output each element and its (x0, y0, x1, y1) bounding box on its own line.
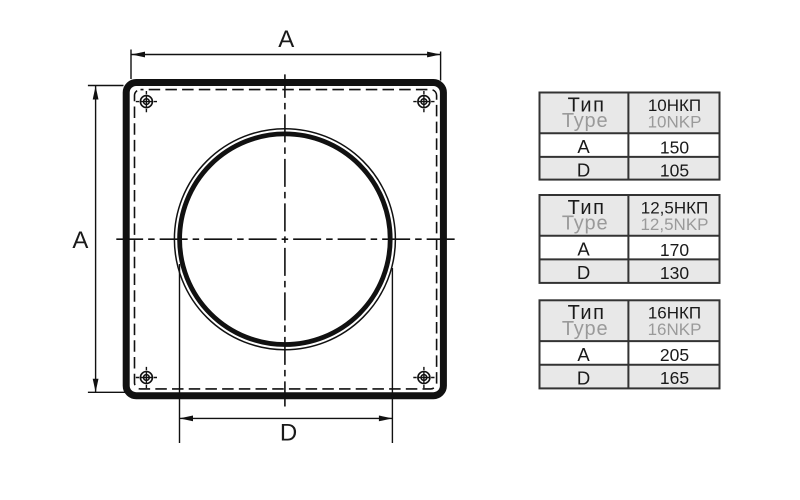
svg-text:10NKP: 10NKP (648, 112, 702, 131)
svg-text:130: 130 (660, 263, 689, 283)
svg-text:16NKP: 16NKP (648, 320, 702, 339)
svg-text:150: 150 (660, 137, 689, 157)
svg-text:205: 205 (660, 345, 689, 365)
svg-text:A: A (577, 239, 590, 260)
svg-text:170: 170 (660, 240, 689, 260)
svg-text:D: D (577, 367, 590, 388)
svg-text:D: D (577, 160, 590, 181)
svg-text:D: D (577, 262, 590, 283)
svg-text:Type: Type (562, 318, 609, 340)
svg-text:165: 165 (660, 368, 689, 388)
svg-text:A: A (72, 227, 88, 254)
svg-text:12,5NKP: 12,5NKP (640, 215, 708, 234)
svg-text:A: A (278, 26, 294, 53)
svg-text:D: D (280, 419, 297, 446)
svg-text:105: 105 (660, 160, 689, 180)
svg-text:Type: Type (562, 213, 609, 235)
svg-text:A: A (577, 344, 590, 365)
svg-text:A: A (577, 136, 590, 157)
svg-text:Type: Type (562, 110, 609, 132)
